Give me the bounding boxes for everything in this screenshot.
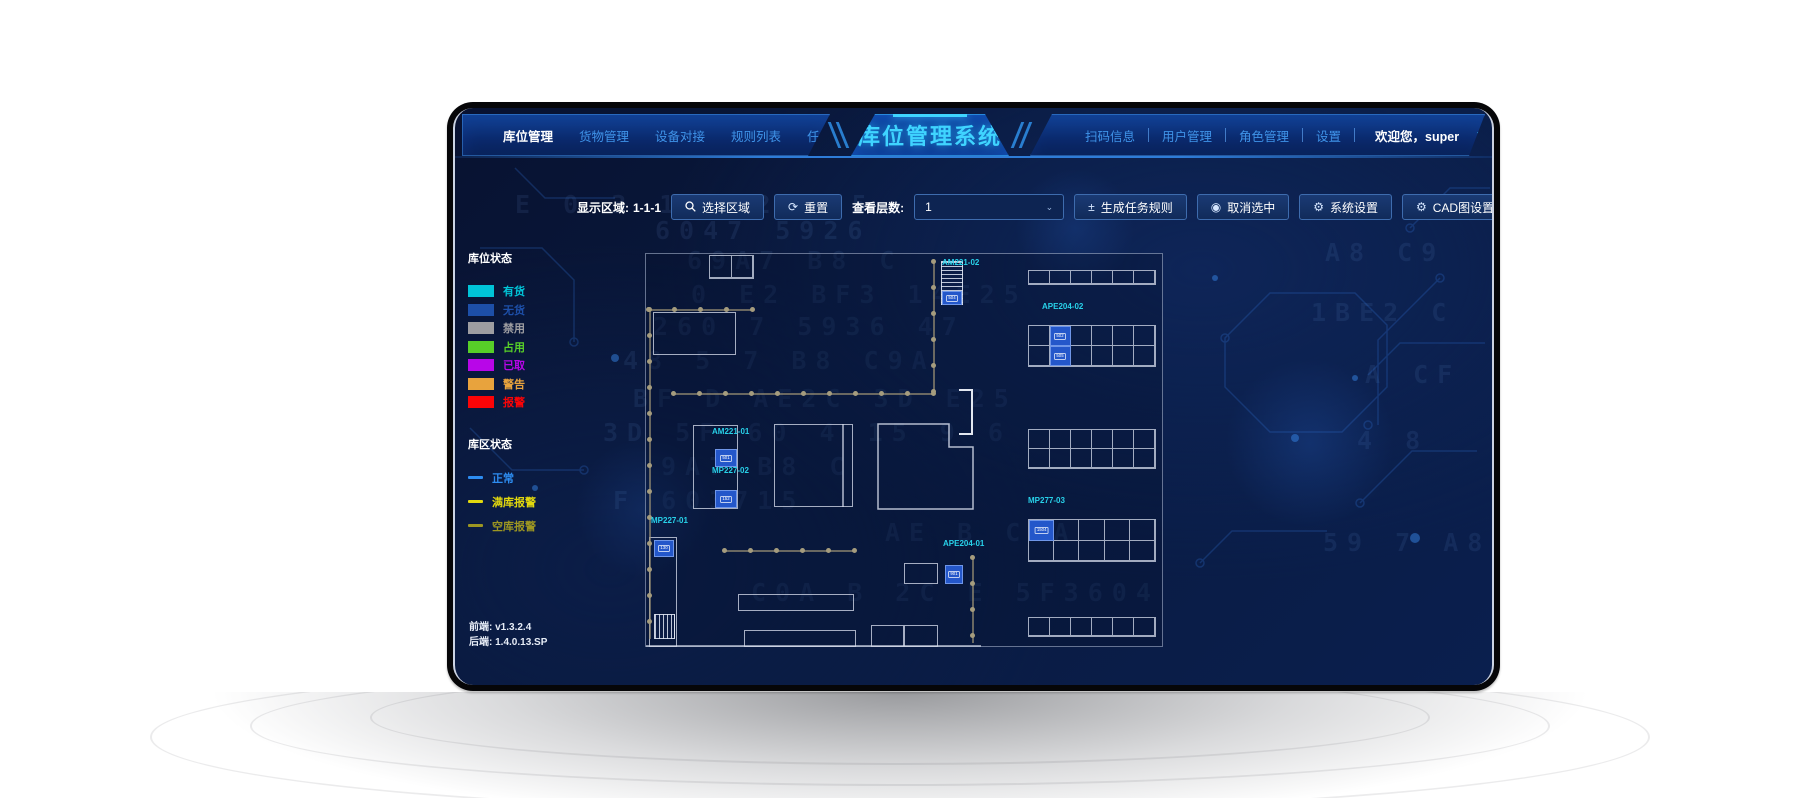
path-node — [970, 633, 975, 638]
path-node — [647, 619, 652, 624]
path-node — [647, 359, 652, 364]
legend-swatch — [468, 396, 494, 408]
display-area-label: 显示区域:1-1-1 — [577, 199, 661, 216]
path-node — [931, 259, 936, 264]
legend-item: 无货 — [468, 301, 580, 320]
legend-dash — [468, 500, 483, 503]
legend-item: 报警 — [468, 393, 580, 412]
legend-dash — [468, 476, 483, 479]
room-outline — [871, 625, 904, 647]
legend-swatch — [468, 285, 494, 297]
rack-cell[interactable] — [1130, 541, 1155, 562]
striped-rack[interactable]: 504 — [941, 261, 963, 305]
rack-cell[interactable] — [1050, 271, 1071, 284]
striped-rack[interactable] — [654, 614, 675, 639]
toolbar: 显示区域:1-1-1 选择区域 ⟳ 重置 查看层数: 1 ⌄ ± 生成任务规则 … — [577, 194, 1494, 220]
slot-code: 505 — [1055, 353, 1067, 359]
user-dropdown-caret[interactable]: ▼ — [1475, 130, 1485, 141]
view-layers-label: 查看层数: — [852, 199, 904, 216]
path-node — [826, 548, 831, 553]
path-node — [672, 307, 677, 312]
storage-rack[interactable] — [1028, 617, 1156, 637]
area-label: MP227-01 — [651, 516, 688, 525]
area-label: MP277-03 — [1028, 496, 1065, 505]
rack-cell[interactable]: 505 — [1050, 346, 1071, 366]
rack-cell[interactable] — [1029, 541, 1054, 562]
nav-tab[interactable]: 用户管理 — [1149, 126, 1225, 145]
path-node — [671, 391, 676, 396]
storage-rack[interactable]: 502505 — [1028, 325, 1156, 367]
storage-rack[interactable]: 1504 — [1028, 519, 1156, 562]
rack-cell[interactable] — [1092, 430, 1113, 449]
nav-tab[interactable]: 库位管理 — [490, 126, 566, 145]
rack-cell[interactable] — [1071, 271, 1092, 284]
path-node — [852, 548, 857, 553]
area-label: APE204-01 — [943, 539, 984, 548]
nav-underline — [455, 156, 1492, 158]
rack-cell[interactable] — [1134, 618, 1155, 636]
nav-divider-slashes-left — [830, 114, 847, 156]
path-node — [647, 567, 652, 572]
rack-cell[interactable] — [1079, 520, 1104, 541]
rack-cell[interactable] — [1029, 430, 1050, 449]
app-window: 6047 592669A7 B8 C0 E2 BF3 14E25260 7 59… — [447, 102, 1500, 691]
path-node — [931, 285, 936, 290]
legend-swatch — [468, 359, 494, 371]
rack-cell[interactable] — [1050, 449, 1071, 468]
nav-right-panel: 扫码信息用户管理角色管理设置欢迎您，super▼ — [1030, 114, 1485, 156]
slot-code: 502 — [1055, 333, 1067, 339]
path-node — [853, 391, 858, 396]
rack-cell[interactable] — [1029, 618, 1050, 636]
slot-status-legend: 有货无货禁用占用已取警告报警 — [468, 282, 580, 412]
view-layers-select[interactable]: 1 ⌄ — [914, 194, 1064, 220]
slot-cell[interactable]: 152 — [715, 490, 737, 508]
window-shadow — [140, 692, 1660, 798]
chevron-down-icon: ⌄ — [1046, 202, 1054, 213]
rack-cell[interactable] — [1134, 271, 1155, 284]
rack-cell[interactable] — [1130, 520, 1155, 541]
area-label: AM221-02 — [942, 258, 979, 267]
path-node — [647, 385, 652, 390]
path-node — [647, 333, 652, 338]
legend-item: 已取 — [468, 356, 580, 375]
room-outline — [744, 630, 856, 647]
rack-cell[interactable] — [1105, 541, 1130, 562]
rack-cell[interactable] — [1113, 449, 1134, 468]
rack-cell[interactable] — [1079, 541, 1104, 562]
path-node — [647, 463, 652, 468]
warehouse-map-canvas[interactable]: 5025051504504501152130901AM221-02APE204-… — [645, 253, 1163, 647]
nav-tab[interactable]: 设置 — [1303, 126, 1354, 145]
rack-cell[interactable] — [1092, 271, 1113, 284]
rack-cell[interactable] — [1092, 449, 1113, 468]
area-label: APE204-02 — [1042, 302, 1083, 311]
storage-rack[interactable] — [1028, 429, 1156, 469]
slot-code: 901 — [948, 571, 960, 577]
rack-cell[interactable] — [1029, 449, 1050, 468]
rack-cell[interactable] — [1113, 346, 1134, 366]
legend-swatch — [468, 378, 494, 390]
rack-cell[interactable] — [710, 256, 732, 278]
gear-icon: ⚙ — [1416, 201, 1427, 213]
rack-cell[interactable] — [1054, 520, 1079, 541]
room-outline — [774, 424, 853, 507]
path-node — [647, 489, 652, 494]
legend-dash — [468, 524, 483, 527]
slot-code: 130 — [658, 545, 670, 551]
path-node — [748, 548, 753, 553]
rack-cell[interactable] — [1071, 346, 1092, 366]
path-node — [970, 581, 975, 586]
refresh-icon: ⟳ — [788, 201, 798, 213]
rack-cell[interactable] — [1134, 326, 1155, 346]
rack-cell[interactable] — [1071, 618, 1092, 636]
path-node — [698, 307, 703, 312]
path-node — [801, 391, 806, 396]
legend-item: 警告 — [468, 375, 580, 394]
reset-button[interactable]: ⟳ 重置 — [774, 194, 842, 220]
room-outline — [653, 312, 736, 355]
path-node — [647, 437, 652, 442]
path-node — [931, 337, 936, 342]
path-node — [750, 307, 755, 312]
path-node — [647, 593, 652, 598]
select-area-button[interactable]: 选择区域 — [671, 194, 764, 220]
rack-cell[interactable] — [1092, 618, 1113, 636]
nav-divider-slashes-right — [1013, 114, 1030, 156]
path-node — [827, 391, 832, 396]
path-node — [931, 363, 936, 368]
slot-cell[interactable]: 130 — [654, 540, 674, 557]
path-node — [647, 307, 652, 312]
rack-cell[interactable] — [1092, 346, 1113, 366]
slot-code: 152 — [720, 496, 732, 502]
plus-minus-icon: ± — [1088, 201, 1095, 213]
nav-tab[interactable]: 扫码信息 — [1072, 126, 1148, 145]
path-node — [724, 307, 729, 312]
path-node — [647, 411, 652, 416]
path-node — [931, 389, 936, 394]
legend-panel: 库位状态 有货无货禁用占用已取警告报警 库区状态 正常满库报警空库报警 — [468, 250, 580, 538]
area-label: AM221-01 — [712, 427, 749, 436]
path-node — [697, 391, 702, 396]
frontend-version: 前端: v1.3.2.4 — [469, 620, 547, 635]
slot-code: 1504 — [1035, 527, 1049, 533]
rack-cell[interactable] — [1113, 326, 1134, 346]
title-notch-decoration — [893, 114, 967, 117]
path-node — [647, 541, 652, 546]
storage-rack[interactable] — [1028, 270, 1156, 285]
room-outline — [904, 625, 938, 647]
legend-swatch — [468, 304, 494, 316]
storage-rack[interactable] — [709, 255, 754, 279]
path-node — [774, 548, 779, 553]
path-node — [800, 548, 805, 553]
rack-cell[interactable] — [1134, 346, 1155, 366]
nav-divider — [1354, 128, 1355, 142]
gear-icon: ⚙ — [1313, 201, 1324, 213]
path-node — [905, 391, 910, 396]
legend-item: 正常 — [468, 466, 580, 490]
rack-cell[interactable] — [732, 256, 754, 278]
path-node — [722, 548, 727, 553]
nav-tab[interactable]: 设备对接 — [642, 126, 718, 145]
legend-item: 禁用 — [468, 319, 580, 338]
rack-cell[interactable] — [1071, 449, 1092, 468]
rack-cell[interactable] — [1071, 430, 1092, 449]
backend-version: 后端: 1.4.0.13.SP — [469, 635, 547, 650]
slot-cell[interactable]: 501 — [715, 449, 737, 467]
rack-cell[interactable] — [1029, 271, 1050, 284]
path-node — [931, 311, 936, 316]
rack-cell[interactable] — [1092, 326, 1113, 346]
path-node — [970, 607, 975, 612]
path-node — [879, 391, 884, 396]
rack-cell[interactable] — [1113, 271, 1134, 284]
slot-code: 501 — [720, 455, 732, 461]
nav-tab[interactable]: 货物管理 — [566, 126, 642, 145]
path-node — [749, 391, 754, 396]
legend-item: 满库报警 — [468, 490, 580, 514]
path-node — [970, 555, 975, 560]
rack-cell[interactable] — [1134, 430, 1155, 449]
nav-tab[interactable]: 规则列表 — [718, 126, 794, 145]
room-outline — [904, 563, 938, 584]
app-content: 6047 592669A7 B8 C0 E2 BF3 14E25260 7 59… — [453, 108, 1494, 685]
path-node — [775, 391, 780, 396]
slot-cell[interactable]: 901 — [945, 565, 963, 584]
cancel-selection-button[interactable]: ◉ 取消选中 — [1197, 194, 1290, 220]
legend-swatch — [468, 322, 494, 334]
rack-cell[interactable] — [1050, 430, 1071, 449]
slot-code: 504 — [946, 295, 958, 301]
legend-item: 有货 — [468, 282, 580, 301]
rack-cell[interactable]: 1504 — [1029, 520, 1054, 541]
rack-cell[interactable] — [1134, 449, 1155, 468]
zone-status-title: 库区状态 — [468, 436, 580, 452]
view-layers-value: 1 — [925, 200, 932, 214]
legend-item: 占用 — [468, 338, 580, 357]
display-area-value: 1-1-1 — [633, 201, 661, 215]
user-welcome[interactable]: 欢迎您，super — [1375, 126, 1459, 145]
rack-cell[interactable] — [1029, 326, 1050, 346]
generate-task-rule-button[interactable]: ± 生成任务规则 — [1074, 194, 1187, 220]
rack-cell[interactable] — [1113, 430, 1134, 449]
rack-cell[interactable] — [1029, 346, 1050, 366]
target-icon: ◉ — [1211, 201, 1221, 213]
slot-status-title: 库位状态 — [468, 250, 580, 266]
nav-tab[interactable]: 角色管理 — [1226, 126, 1302, 145]
zone-status-legend: 正常满库报警空库报警 — [468, 466, 580, 538]
rack-cell[interactable] — [1105, 520, 1130, 541]
area-label: MP227-02 — [712, 466, 749, 475]
door-bracket — [959, 389, 973, 435]
search-icon — [685, 201, 696, 214]
room-outline — [738, 594, 854, 611]
rack-cell[interactable] — [1071, 326, 1092, 346]
nav-title-panel: 库位管理系统 — [851, 114, 1009, 156]
version-info: 前端: v1.3.2.4 后端: 1.4.0.13.SP — [469, 620, 547, 650]
rack-cell[interactable] — [1113, 618, 1134, 636]
app-title: 库位管理系统 — [858, 119, 1002, 151]
system-settings-button[interactable]: ⚙ 系统设置 — [1299, 194, 1392, 220]
slot-cell[interactable]: 504 — [942, 291, 962, 305]
top-nav: 库位管理货物管理设备对接规则列表任务列表 库位管理系统 扫码信息用户管理角色管理… — [455, 114, 1492, 156]
path-node — [723, 391, 728, 396]
rack-cell[interactable] — [1054, 541, 1079, 562]
cad-settings-button[interactable]: ⚙ CAD图设置 — [1402, 194, 1494, 220]
rack-cell[interactable] — [1050, 618, 1071, 636]
legend-swatch — [468, 341, 494, 353]
rack-cell[interactable]: 502 — [1050, 326, 1071, 346]
legend-item: 空库报警 — [468, 514, 580, 538]
nav-left-panel: 库位管理货物管理设备对接规则列表任务列表 — [462, 114, 830, 156]
